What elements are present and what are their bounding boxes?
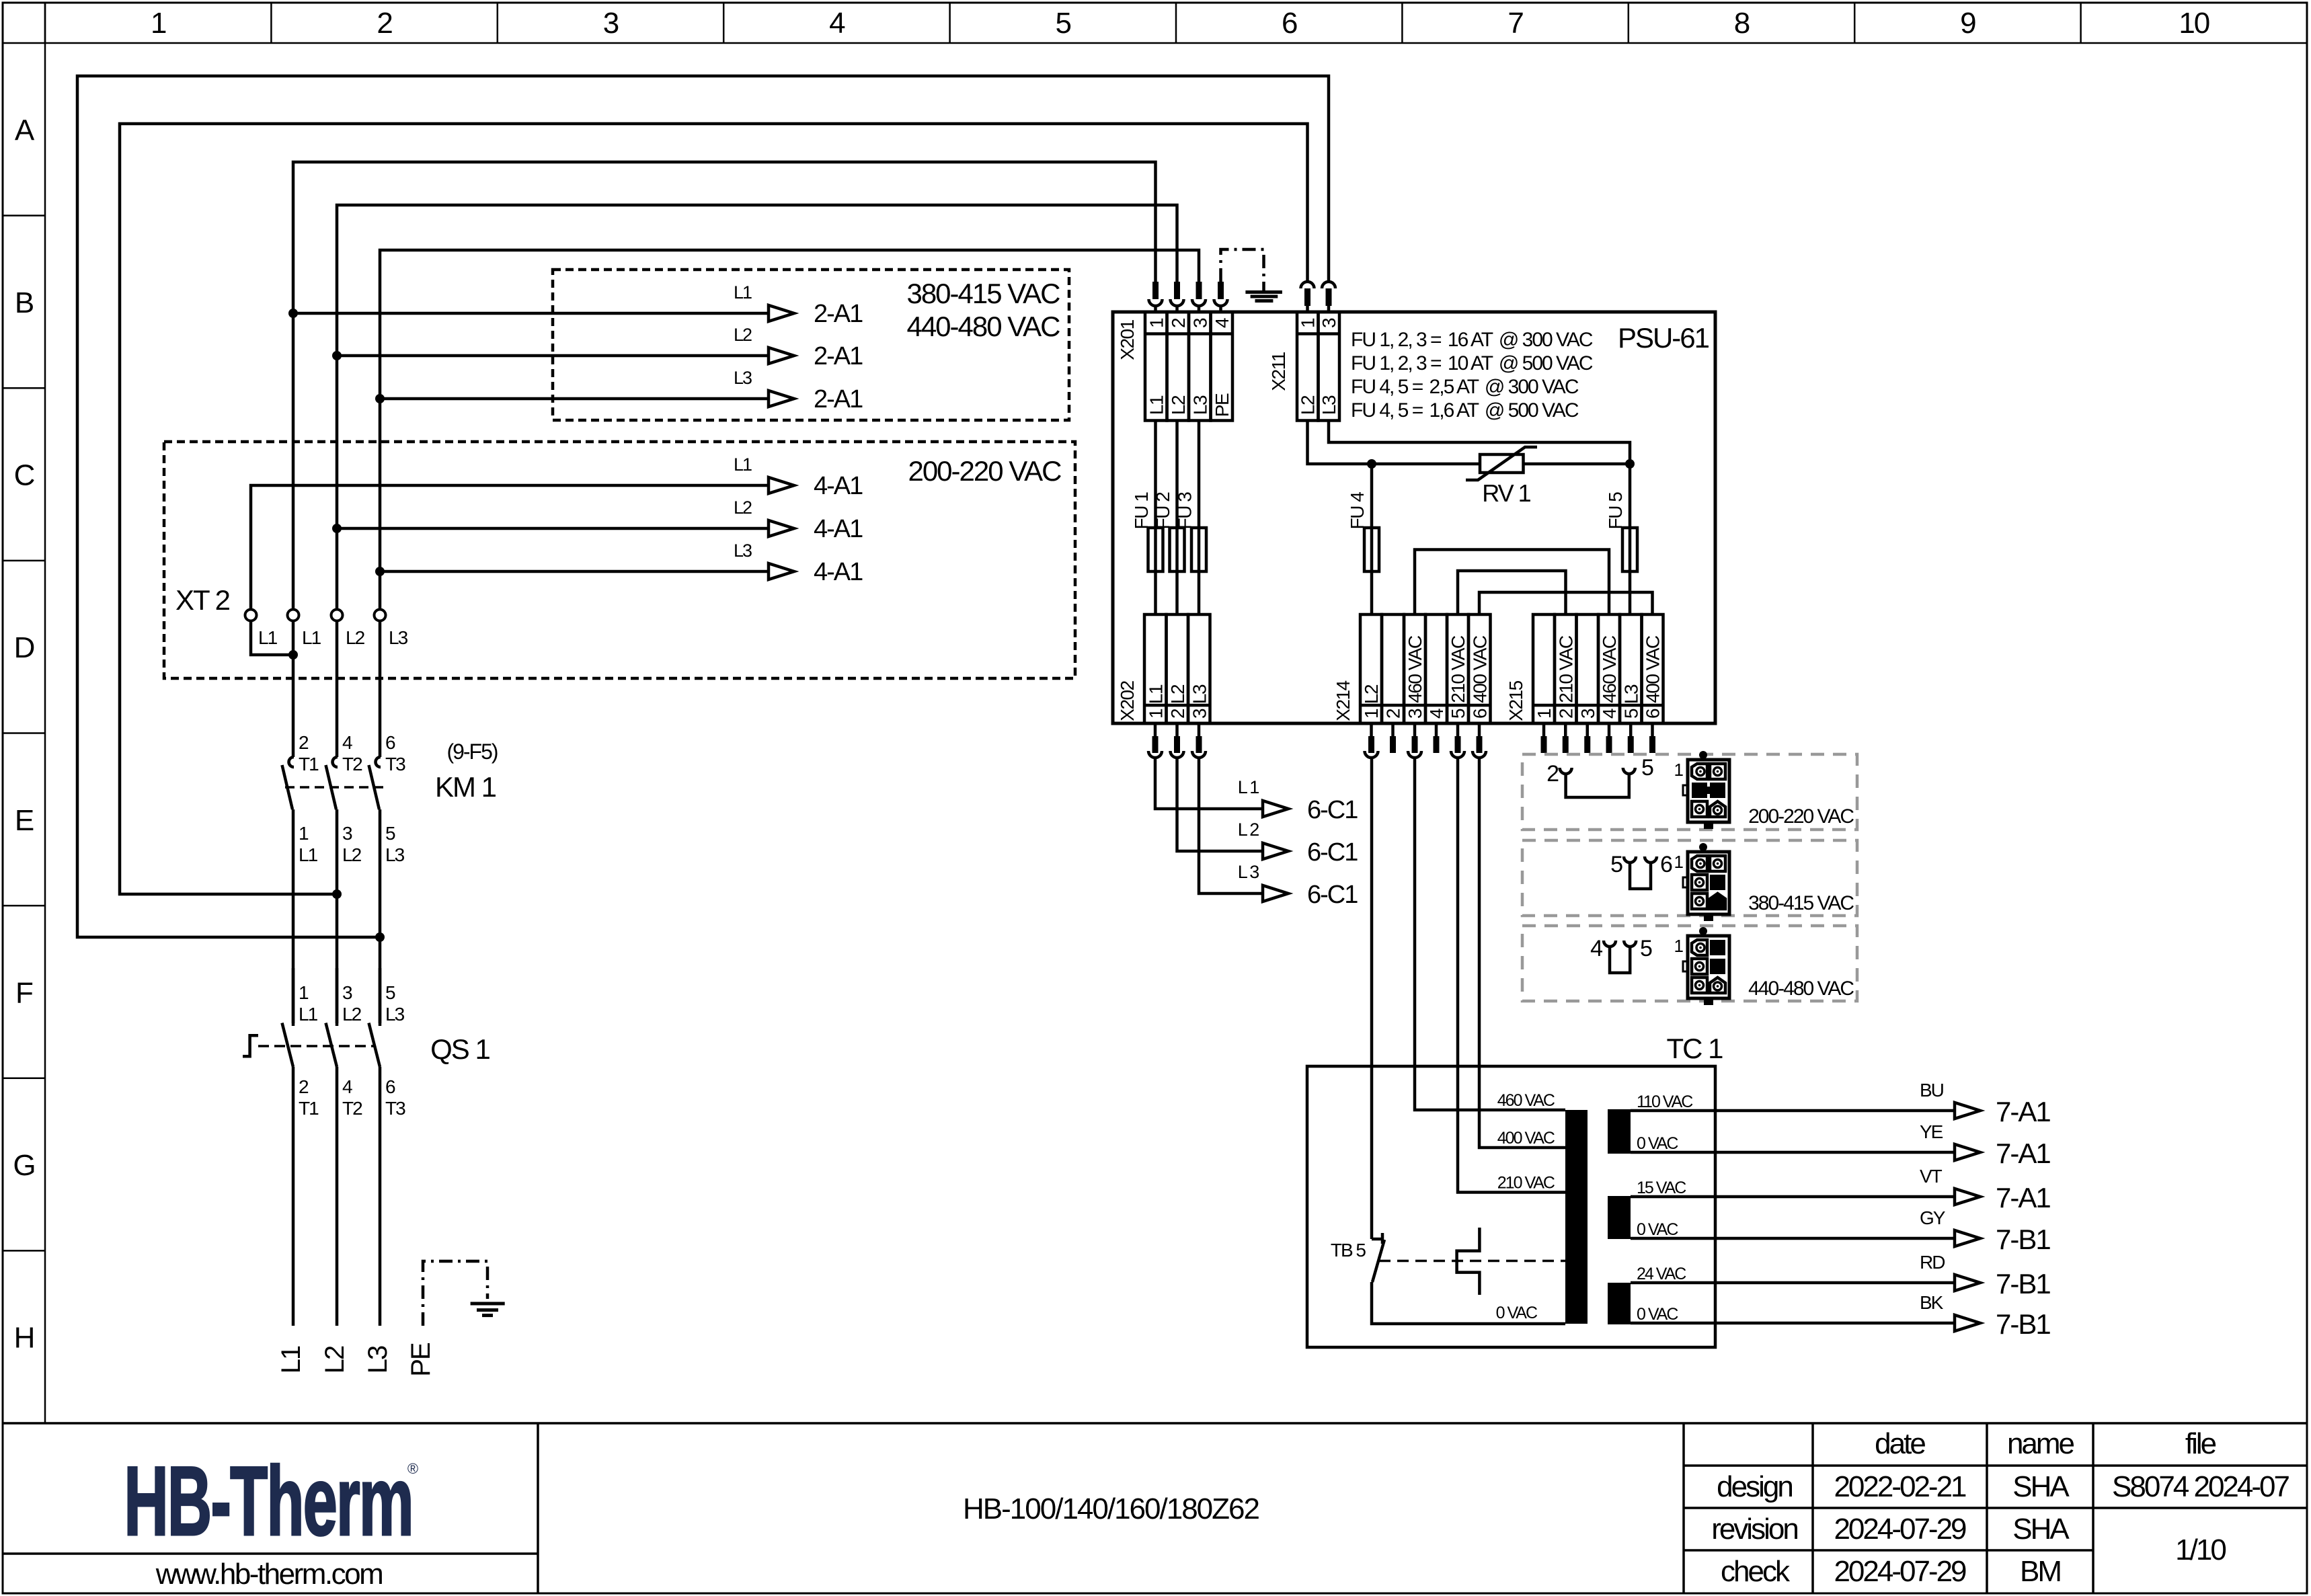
svg-text:L3: L3: [1189, 684, 1210, 704]
svg-text:5: 5: [1640, 936, 1652, 961]
svg-text:BK: BK: [1920, 1292, 1944, 1313]
svg-text:C: C: [14, 459, 35, 492]
svg-text:3: 3: [603, 7, 619, 40]
svg-text:4: 4: [1426, 709, 1447, 719]
svg-text:PE: PE: [406, 1343, 436, 1377]
svg-text:4-A1: 4-A1: [814, 515, 863, 543]
svg-text:4: 4: [342, 1076, 352, 1097]
svg-text:440-480 VAC: 440-480 VAC: [1748, 977, 1854, 1000]
svg-text:460 VAC: 460 VAC: [1405, 635, 1425, 703]
svg-text:4-A1: 4-A1: [814, 558, 863, 586]
svg-text:design: design: [1717, 1470, 1792, 1503]
svg-text:2: 2: [1383, 709, 1404, 719]
svg-text:7-B1: 7-B1: [1996, 1224, 2050, 1255]
svg-text:2024-07-29: 2024-07-29: [1834, 1555, 1966, 1588]
svg-text:7-B1: 7-B1: [1996, 1308, 2050, 1340]
svg-text:4: 4: [1599, 709, 1620, 719]
svg-text:2: 2: [1167, 709, 1188, 719]
svg-text:7: 7: [1507, 7, 1523, 40]
svg-text:2-A1: 2-A1: [814, 385, 863, 413]
svg-text:FU 1: FU 1: [1131, 492, 1152, 530]
svg-text:H: H: [14, 1322, 34, 1355]
svg-text:210 VAC: 210 VAC: [1448, 635, 1468, 703]
svg-text:8: 8: [1734, 7, 1750, 40]
svg-text:L 1: L 1: [1238, 777, 1259, 797]
svg-text:T1: T1: [299, 1098, 319, 1119]
svg-text:460 VAC: 460 VAC: [1599, 635, 1620, 703]
svg-text:FU 1, 2, 3 = 16 AT @ 300 VAC: FU 1, 2, 3 = 16 AT @ 300 VAC: [1351, 329, 1593, 351]
svg-text:4-A1: 4-A1: [814, 472, 863, 500]
svg-text:PE: PE: [1212, 393, 1232, 417]
svg-text:6-C1: 6-C1: [1307, 796, 1358, 824]
svg-text:YE: YE: [1920, 1121, 1943, 1142]
svg-text:T1: T1: [299, 754, 319, 774]
svg-text:2: 2: [1555, 709, 1576, 719]
svg-text:2: 2: [377, 7, 392, 40]
svg-text:L2: L2: [1168, 395, 1189, 415]
svg-text:S8074 2024-07: S8074 2024-07: [2112, 1470, 2289, 1503]
svg-text:210 VAC: 210 VAC: [1555, 635, 1576, 703]
svg-text:6: 6: [1282, 7, 1297, 40]
svg-text:1: 1: [1674, 760, 1684, 780]
svg-text:5: 5: [1448, 709, 1468, 719]
svg-text:460 VAC: 460 VAC: [1497, 1091, 1555, 1110]
svg-text:T3: T3: [385, 1098, 405, 1119]
svg-text:name: name: [2007, 1427, 2074, 1460]
svg-text:L2: L2: [734, 497, 752, 518]
svg-text:BM: BM: [2020, 1555, 2060, 1588]
svg-text:X211: X211: [1268, 352, 1289, 391]
svg-text:VT: VT: [1920, 1166, 1943, 1187]
svg-text:L1: L1: [734, 454, 752, 475]
svg-text:1: 1: [151, 7, 166, 40]
svg-text:1: 1: [1145, 709, 1166, 719]
svg-text:L2: L2: [734, 325, 752, 345]
svg-text:GY: GY: [1920, 1207, 1946, 1228]
svg-text:QS 1: QS 1: [430, 1033, 489, 1065]
svg-text:L2: L2: [1361, 684, 1382, 704]
svg-text:1: 1: [1674, 852, 1684, 872]
svg-text:L3: L3: [385, 1004, 405, 1025]
svg-text:L1: L1: [1146, 395, 1167, 415]
svg-text:5: 5: [385, 823, 395, 844]
svg-text:F: F: [15, 976, 33, 1009]
svg-text:TB 5: TB 5: [1331, 1240, 1366, 1261]
svg-text:4: 4: [342, 732, 352, 753]
svg-text:L3: L3: [734, 541, 752, 561]
svg-text:(9-F5): (9-F5): [446, 740, 497, 764]
svg-text:L3: L3: [363, 1346, 393, 1373]
svg-text:X215: X215: [1505, 680, 1526, 721]
svg-text:file: file: [2185, 1427, 2216, 1460]
svg-text:9: 9: [1960, 7, 1975, 40]
svg-text:KM 1: KM 1: [435, 771, 496, 803]
svg-text:L3: L3: [385, 844, 405, 865]
svg-text:HB-Therm: HB-Therm: [124, 1446, 412, 1556]
svg-text:1: 1: [299, 823, 309, 844]
svg-text:B: B: [15, 286, 34, 319]
svg-text:L1: L1: [302, 627, 321, 648]
svg-text:FU 2: FU 2: [1152, 492, 1173, 530]
svg-text:L1: L1: [1145, 684, 1166, 704]
svg-text:2: 2: [1546, 761, 1559, 787]
svg-text:7-A1: 7-A1: [1996, 1138, 2050, 1169]
svg-text:3: 3: [342, 982, 352, 1003]
svg-text:L2: L2: [342, 844, 362, 865]
svg-text:1: 1: [1146, 318, 1167, 328]
svg-text:TC 1: TC 1: [1666, 1033, 1723, 1064]
svg-text:4: 4: [1590, 936, 1602, 961]
svg-text:BU: BU: [1920, 1080, 1944, 1101]
svg-text:check: check: [1721, 1555, 1791, 1588]
svg-text:3: 3: [1189, 709, 1210, 719]
svg-text:5: 5: [1610, 852, 1622, 877]
svg-text:440-480 VAC: 440-480 VAC: [906, 311, 1060, 342]
svg-text:0 VAC: 0 VAC: [1496, 1304, 1538, 1322]
svg-text:L3: L3: [1620, 684, 1641, 704]
svg-text:5: 5: [1056, 7, 1071, 40]
svg-text:FU 4, 5 = 2,5 AT @ 300 VAC: FU 4, 5 = 2,5 AT @ 300 VAC: [1351, 376, 1579, 398]
svg-text:2: 2: [299, 1076, 309, 1097]
svg-text:400 VAC: 400 VAC: [1643, 635, 1663, 703]
svg-text:400 VAC: 400 VAC: [1497, 1129, 1555, 1148]
svg-text:L2: L2: [346, 627, 365, 648]
svg-text:L2: L2: [342, 1004, 362, 1025]
svg-text:L1: L1: [299, 844, 318, 865]
svg-text:380-415 VAC: 380-415 VAC: [1748, 892, 1854, 914]
svg-text:2: 2: [299, 732, 309, 753]
svg-text:200-220 VAC: 200-220 VAC: [1748, 805, 1854, 828]
svg-text:1: 1: [1674, 936, 1684, 956]
svg-text:3: 3: [342, 823, 352, 844]
svg-text:2-A1: 2-A1: [814, 300, 863, 328]
svg-text:2022-02-21: 2022-02-21: [1834, 1470, 1966, 1503]
svg-text:L3: L3: [389, 627, 408, 648]
svg-text:110 VAC: 110 VAC: [1637, 1092, 1693, 1111]
svg-text:0 VAC: 0 VAC: [1637, 1220, 1678, 1239]
svg-text:date: date: [1875, 1427, 1925, 1460]
svg-text:2-A1: 2-A1: [814, 342, 863, 370]
svg-text:®: ®: [407, 1460, 418, 1477]
svg-text:380-415 VAC: 380-415 VAC: [906, 278, 1060, 309]
svg-text:0 VAC: 0 VAC: [1637, 1134, 1678, 1153]
svg-text:6: 6: [1643, 709, 1663, 719]
svg-text:revision: revision: [1711, 1513, 1797, 1546]
svg-text:4: 4: [1212, 318, 1232, 328]
svg-text:5: 5: [1641, 755, 1653, 781]
svg-text:200-220 VAC: 200-220 VAC: [908, 455, 1061, 487]
svg-text:1: 1: [299, 982, 309, 1003]
svg-text:T3: T3: [385, 754, 405, 774]
svg-text:400 VAC: 400 VAC: [1469, 635, 1490, 703]
svg-text:G: G: [13, 1149, 34, 1182]
svg-text:2024-07-29: 2024-07-29: [1834, 1513, 1966, 1546]
svg-text:L3: L3: [734, 368, 752, 388]
svg-text:3: 3: [1405, 709, 1425, 719]
svg-text:7-A1: 7-A1: [1996, 1182, 2050, 1213]
svg-text:1: 1: [1298, 318, 1319, 328]
svg-text:XT 2: XT 2: [175, 584, 230, 616]
svg-text:RD: RD: [1920, 1252, 1945, 1273]
svg-text:3: 3: [1577, 709, 1598, 719]
svg-text:SHA: SHA: [2012, 1470, 2070, 1503]
svg-text:L1: L1: [258, 627, 278, 648]
svg-text:FU 5: FU 5: [1605, 492, 1626, 530]
svg-text:6-C1: 6-C1: [1307, 838, 1358, 867]
svg-text:L2: L2: [320, 1346, 350, 1373]
svg-text:L3: L3: [1189, 395, 1210, 415]
svg-text:E: E: [15, 804, 34, 837]
svg-text:L1: L1: [276, 1346, 306, 1373]
svg-text:5: 5: [1620, 709, 1641, 719]
svg-text:6: 6: [1469, 709, 1490, 719]
svg-text:3: 3: [1189, 318, 1210, 328]
svg-text:HB-100/140/160/180Z62: HB-100/140/160/180Z62: [963, 1492, 1259, 1525]
svg-text:D: D: [14, 631, 34, 664]
svg-text:7-A1: 7-A1: [1996, 1096, 2050, 1127]
svg-text:FU 4: FU 4: [1347, 492, 1368, 530]
svg-text:L 3: L 3: [1238, 862, 1259, 882]
svg-text:L 2: L 2: [1238, 820, 1259, 840]
svg-text:6: 6: [1660, 852, 1672, 877]
svg-text:15 VAC: 15 VAC: [1637, 1179, 1686, 1197]
svg-text:210 VAC: 210 VAC: [1497, 1174, 1555, 1193]
svg-text:7-B1: 7-B1: [1996, 1268, 2050, 1300]
svg-text:X201: X201: [1117, 319, 1138, 360]
svg-text:1: 1: [1534, 709, 1555, 719]
svg-text:4: 4: [829, 7, 845, 40]
svg-text:RV 1: RV 1: [1482, 479, 1530, 507]
svg-text:www.hb-therm.com: www.hb-therm.com: [155, 1558, 383, 1591]
svg-text:L3: L3: [1319, 395, 1339, 415]
svg-text:T2: T2: [342, 754, 362, 774]
svg-text:L2: L2: [1298, 395, 1319, 415]
svg-text:L1: L1: [299, 1004, 318, 1025]
svg-text:1/10: 1/10: [2175, 1533, 2226, 1566]
svg-text:6-C1: 6-C1: [1307, 881, 1358, 909]
svg-text:FU 4, 5 = 1,6 AT @ 500 VAC: FU 4, 5 = 1,6 AT @ 500 VAC: [1351, 399, 1579, 422]
svg-text:FU 1, 2, 3 = 10 AT @ 500 VAC: FU 1, 2, 3 = 10 AT @ 500 VAC: [1351, 352, 1593, 374]
svg-text:5: 5: [385, 982, 395, 1003]
svg-text:3: 3: [1319, 318, 1339, 328]
svg-text:T2: T2: [342, 1098, 362, 1119]
svg-text:FU 3: FU 3: [1175, 492, 1196, 530]
svg-text:0 VAC: 0 VAC: [1637, 1305, 1678, 1324]
svg-text:X202: X202: [1117, 680, 1138, 721]
svg-text:PSU-61: PSU-61: [1618, 322, 1709, 354]
svg-text:1: 1: [1361, 709, 1382, 719]
svg-text:L1: L1: [734, 282, 752, 303]
svg-text:2: 2: [1168, 318, 1189, 328]
svg-text:10: 10: [2179, 7, 2209, 40]
svg-text:6: 6: [385, 1076, 395, 1097]
svg-text:24 VAC: 24 VAC: [1637, 1265, 1686, 1283]
svg-text:SHA: SHA: [2012, 1513, 2070, 1546]
svg-text:A: A: [15, 114, 35, 147]
svg-text:X214: X214: [1333, 680, 1354, 721]
svg-text:L2: L2: [1167, 684, 1188, 704]
svg-text:6: 6: [385, 732, 395, 753]
